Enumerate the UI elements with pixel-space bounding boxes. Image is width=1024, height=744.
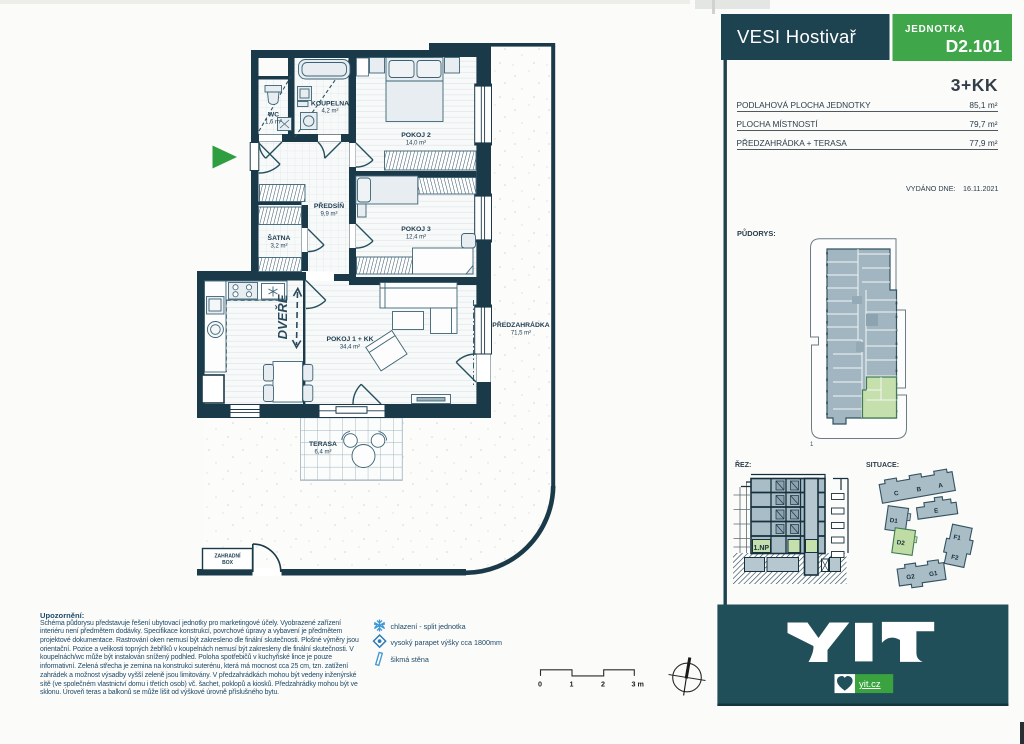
svg-text:TERASA: TERASA xyxy=(309,441,337,448)
svg-text:G2: G2 xyxy=(906,573,916,581)
svg-text:1.NP: 1.NP xyxy=(754,545,770,552)
svg-text:KOUPELNA: KOUPELNA xyxy=(311,101,349,108)
svg-text:POKOJ 2: POKOJ 2 xyxy=(401,132,431,139)
svg-text:POKOJ 1 + KK: POKOJ 1 + KK xyxy=(326,336,373,343)
svg-text:ŠATNA: ŠATNA xyxy=(268,233,291,242)
svg-text:9,9 m²: 9,9 m² xyxy=(320,212,337,218)
svg-text:yit.cz: yit.cz xyxy=(859,679,881,690)
svg-text:14,0 m²: 14,0 m² xyxy=(406,141,426,147)
svg-text:POKOJ 3: POKOJ 3 xyxy=(401,226,431,233)
svg-text:1: 1 xyxy=(570,680,574,689)
svg-text:PŘEDSÍŇ: PŘEDSÍŇ xyxy=(314,201,344,210)
svg-text:3 m: 3 m xyxy=(632,680,644,689)
svg-text:12,4 m²: 12,4 m² xyxy=(406,235,426,241)
svg-text:D1: D1 xyxy=(889,517,898,525)
svg-text:PŘEDZAHRÁDKA: PŘEDZAHRÁDKA xyxy=(492,320,549,329)
svg-text:2: 2 xyxy=(601,680,605,689)
svg-text:WC: WC xyxy=(268,112,279,119)
svg-text:6,4 m²: 6,4 m² xyxy=(314,450,331,456)
svg-text:71,5 m²: 71,5 m² xyxy=(511,331,531,337)
svg-text:0: 0 xyxy=(538,680,542,689)
svg-text:1: 1 xyxy=(810,442,814,448)
svg-text:34,4 m²: 34,4 m² xyxy=(340,345,360,351)
svg-text:D2: D2 xyxy=(896,539,905,547)
svg-text:DVEŘE: DVEŘE xyxy=(275,294,290,339)
svg-text:1,6 m²: 1,6 m² xyxy=(265,120,282,126)
svg-text:BOX: BOX xyxy=(222,560,234,566)
svg-text:3,2 m²: 3,2 m² xyxy=(270,244,287,250)
svg-text:ZAHRADNÍ: ZAHRADNÍ xyxy=(214,552,241,560)
svg-text:4,2 m²: 4,2 m² xyxy=(321,109,338,115)
svg-text:G1: G1 xyxy=(929,570,939,578)
